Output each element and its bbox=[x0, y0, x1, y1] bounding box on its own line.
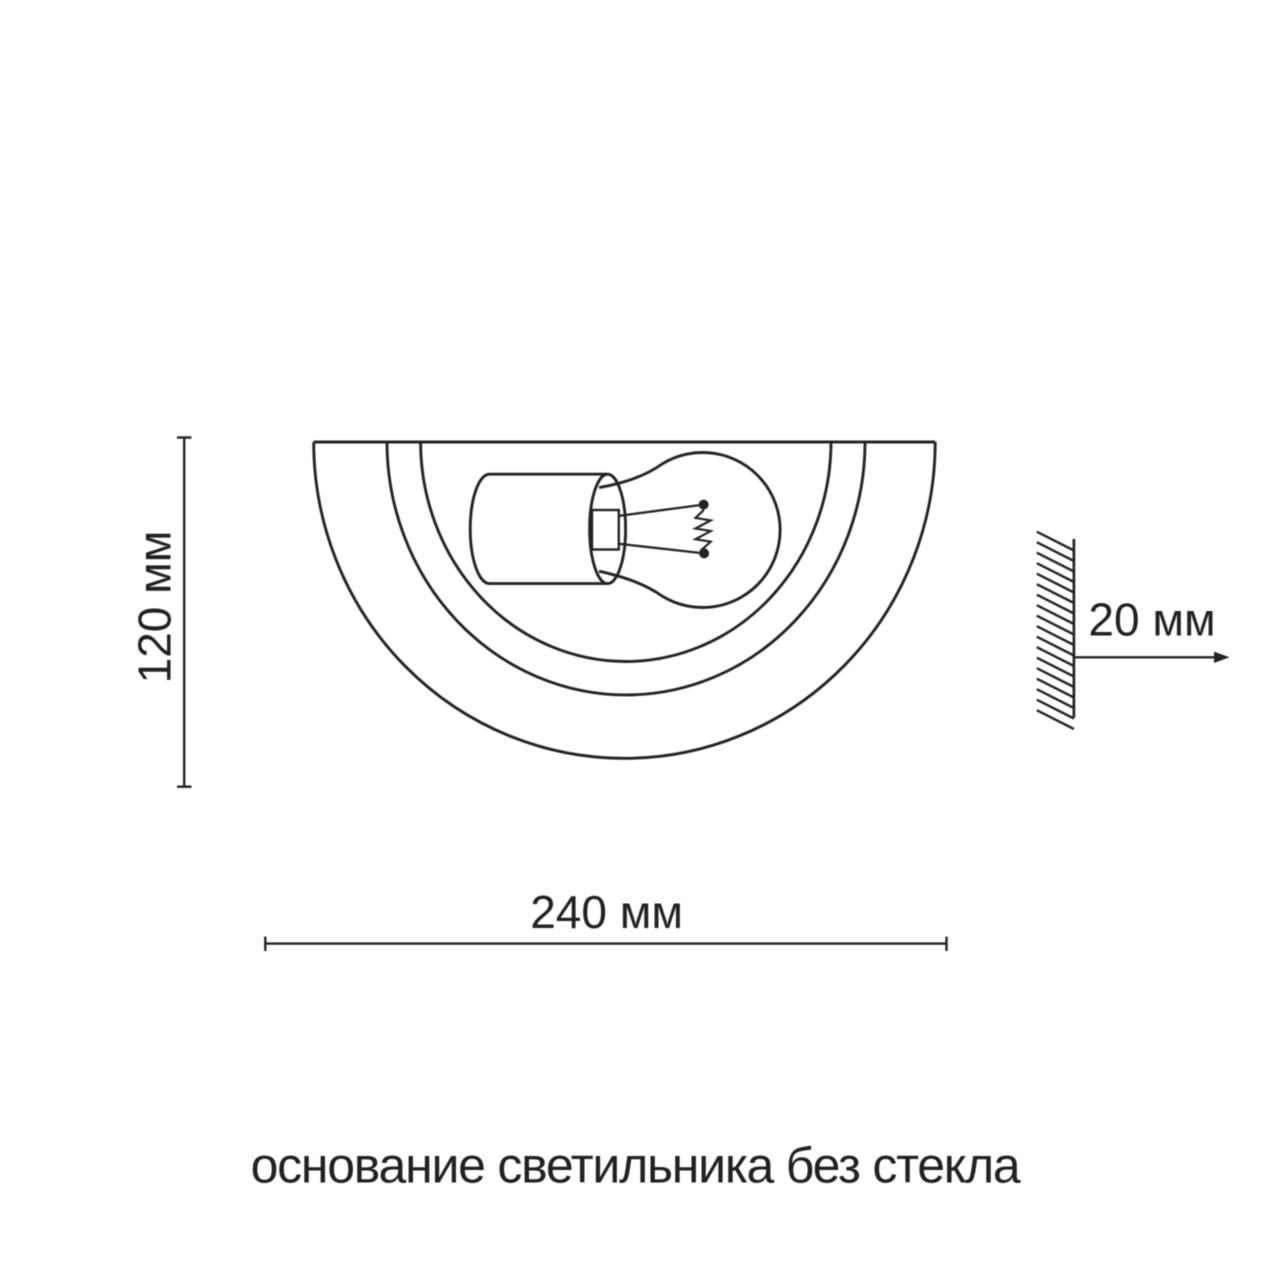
svg-text:120 мм: 120 мм bbox=[129, 531, 181, 684]
svg-text:основание светильника без стек: основание светильника без стекла bbox=[251, 1138, 1021, 1194]
svg-text:20 мм: 20 мм bbox=[1088, 594, 1215, 646]
svg-text:240 мм: 240 мм bbox=[530, 886, 683, 938]
